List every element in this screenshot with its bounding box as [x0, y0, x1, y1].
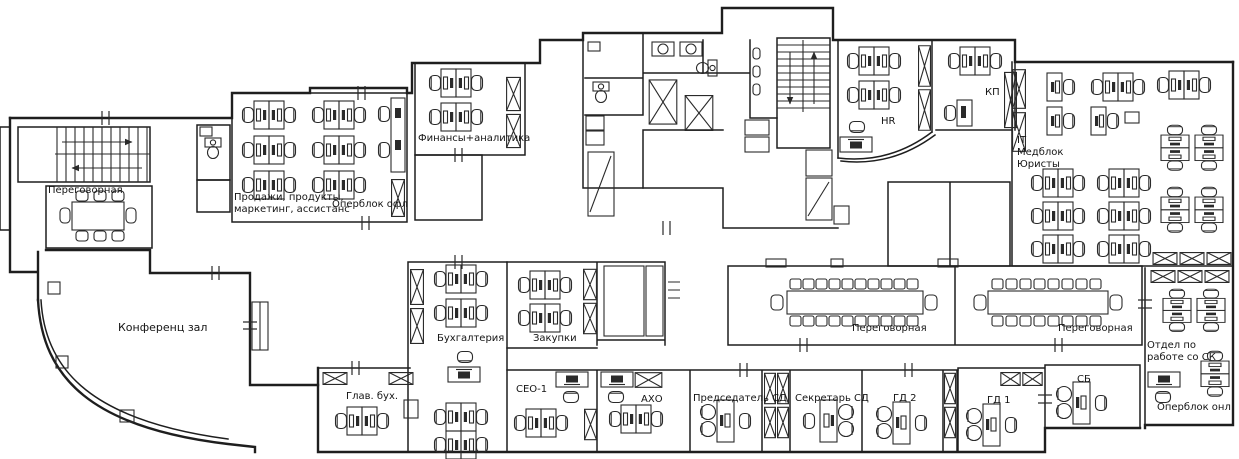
- meeting-central-table: [771, 279, 937, 326]
- room-label-meeting-nw: Переговорная: [48, 185, 123, 197]
- accounting-furniture: [411, 265, 488, 459]
- room-label-sk-department: Отдел по работе со СК: [1147, 340, 1216, 364]
- room-label-it-block: IT Медблок Юристы: [1017, 135, 1063, 170]
- chief-accountant-furniture: [323, 373, 418, 435]
- room-label-gd1: ГД 1: [987, 395, 1010, 407]
- hr-furniture: [840, 46, 930, 152]
- storage-room: [604, 266, 680, 336]
- room-label-aho: АХО: [641, 394, 663, 406]
- room-label-conference-hall: Конференц зал: [118, 322, 207, 335]
- room-label-meeting-east: Переговорная: [1058, 323, 1133, 335]
- secretary-furniture: [804, 400, 854, 442]
- room-label-operblock-onl: Оперблок онл: [1157, 402, 1231, 414]
- room-label-gd2: ГД 2: [893, 393, 916, 405]
- room-label-operblock-ofl: Оперблок офл: [332, 199, 408, 211]
- room-label-ceo1: СЕО-1: [516, 384, 547, 396]
- ceo1-furniture: [515, 372, 597, 440]
- gd1-furniture: [967, 373, 1043, 446]
- room-label-meeting-central: Переговорная: [852, 323, 927, 335]
- chairman-furniture: [701, 373, 789, 442]
- stairs-nw: [55, 127, 150, 182]
- partition-walls: [18, 33, 1233, 452]
- elevators: [649, 80, 713, 131]
- room-label-board-secretary: Секретарь СД: [795, 393, 869, 405]
- room-label-procurement: Закупки: [533, 333, 577, 345]
- sb-furniture: [1057, 382, 1107, 424]
- room-label-board-chairman: Председатель СД: [693, 393, 787, 405]
- kp-furniture: [945, 47, 1017, 128]
- floor-plan: Переговорная Конференц зал Продажи, прод…: [0, 0, 1239, 459]
- room-label-hr: HR: [881, 116, 895, 128]
- procurement-furniture: [519, 269, 597, 333]
- room-label-chief-accountant: Глав. бух.: [346, 391, 398, 403]
- floor-plan-drawing: [0, 0, 1239, 459]
- room-label-sb: СБ: [1077, 374, 1091, 386]
- sk-room-furniture: [1148, 271, 1229, 403]
- meeting-east-table: [974, 279, 1122, 326]
- stairs-east: [777, 40, 830, 112]
- meeting-nw-furniture: [60, 191, 136, 241]
- core-closets: [586, 116, 849, 224]
- room-label-finance: Финансы+аналитика: [418, 133, 530, 145]
- door-ticks: [102, 86, 1152, 403]
- room-label-kp: КП: [985, 87, 1000, 99]
- room-label-accounting: Бухгалтерия: [437, 333, 504, 345]
